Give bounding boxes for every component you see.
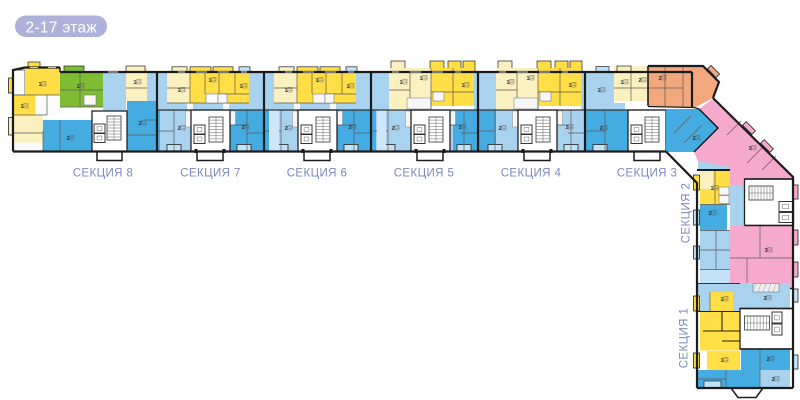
svg-text:1: 1 <box>284 88 287 94</box>
svg-text:2: 2 <box>391 126 394 132</box>
svg-text:1: 1 <box>419 76 422 82</box>
svg-text:СЕКЦИЯ 7: СЕКЦИЯ 7 <box>180 168 241 180</box>
svg-text:1: 1 <box>720 358 723 364</box>
svg-text:2: 2 <box>658 76 661 82</box>
svg-text:1: 1 <box>315 78 318 84</box>
svg-text:1: 1 <box>346 84 349 90</box>
svg-text:2: 2 <box>177 126 180 132</box>
svg-text:1: 1 <box>177 88 180 94</box>
svg-text:1: 1 <box>526 76 529 82</box>
svg-text:2: 2 <box>498 126 501 132</box>
svg-text:1: 1 <box>38 82 41 88</box>
svg-text:1: 1 <box>133 80 136 86</box>
svg-text:2: 2 <box>638 78 641 84</box>
svg-text:2: 2 <box>348 125 351 131</box>
svg-text:2: 2 <box>565 125 568 131</box>
svg-text:2: 2 <box>458 125 461 131</box>
svg-text:2: 2 <box>284 126 287 132</box>
svg-text:1: 1 <box>597 88 600 94</box>
svg-text:1: 1 <box>76 84 79 90</box>
svg-text:3: 3 <box>748 146 751 152</box>
svg-text:2: 2 <box>692 136 695 142</box>
svg-text:СЕКЦИЯ 4: СЕКЦИЯ 4 <box>501 168 562 180</box>
svg-text:1: 1 <box>710 186 713 192</box>
svg-text:2: 2 <box>241 125 244 131</box>
svg-text:СЕКЦИЯ 5: СЕКЦИЯ 5 <box>394 168 455 180</box>
svg-text:1: 1 <box>20 104 23 110</box>
svg-text:СЕКЦИЯ 1: СЕКЦИЯ 1 <box>679 308 691 369</box>
svg-text:1: 1 <box>720 297 723 303</box>
svg-text:СЕКЦИЯ 2: СЕКЦИЯ 2 <box>681 183 693 244</box>
svg-text:3: 3 <box>764 248 767 254</box>
svg-text:2: 2 <box>66 136 69 142</box>
svg-text:2: 2 <box>708 211 711 217</box>
svg-text:1: 1 <box>239 84 242 90</box>
svg-text:2: 2 <box>766 357 769 363</box>
svg-text:1: 1 <box>461 83 464 89</box>
svg-text:1: 1 <box>506 80 509 86</box>
svg-text:2-17 этаж: 2-17 этаж <box>26 19 98 36</box>
svg-text:1: 1 <box>208 78 211 84</box>
svg-text:СЕКЦИЯ 6: СЕКЦИЯ 6 <box>287 168 348 180</box>
svg-text:1: 1 <box>620 80 623 86</box>
svg-text:2: 2 <box>763 296 766 302</box>
svg-text:2: 2 <box>599 126 602 132</box>
svg-text:СЕКЦИЯ 3: СЕКЦИЯ 3 <box>617 168 678 180</box>
svg-text:1: 1 <box>399 80 402 86</box>
svg-text:СЕКЦИЯ 8: СЕКЦИЯ 8 <box>73 168 134 180</box>
svg-text:2: 2 <box>138 121 141 127</box>
svg-text:1: 1 <box>568 83 571 89</box>
svg-text:2: 2 <box>771 377 774 383</box>
